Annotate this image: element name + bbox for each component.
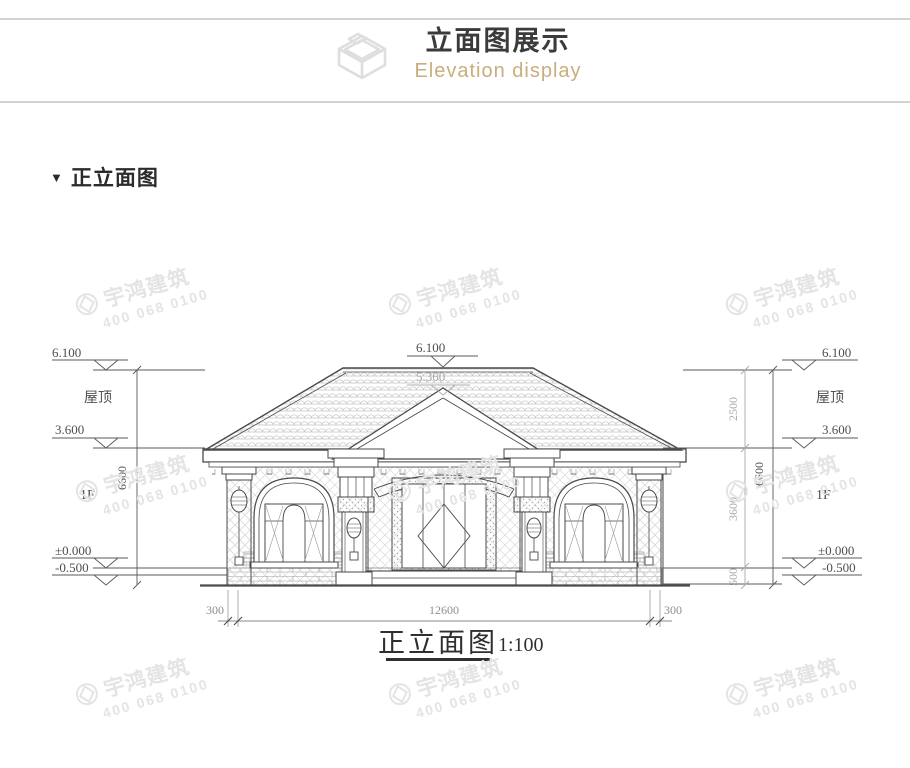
level-label-ridge-center: 6.100	[416, 340, 445, 355]
level-label-zero-left: ±0.000	[55, 543, 91, 558]
total-height-dim-right: 6600	[752, 462, 766, 486]
level-label-zero-right: ±0.000	[818, 543, 854, 558]
roof-label-left: 屋顶	[84, 391, 112, 406]
main-width-dim: 12600	[429, 603, 459, 617]
level-label-ground-right: -0.500	[822, 560, 856, 575]
side-width-dim-left: 300	[206, 603, 224, 617]
drawing-caption: 正立面图	[378, 628, 498, 658]
level-label-eave-left: 3.600	[55, 422, 84, 437]
floor-label-right: 1F	[816, 488, 831, 503]
page: { "header": { "title": "立面图展示", "subtitl…	[0, 0, 910, 768]
level-label-ridge-left: 6.100	[52, 345, 81, 360]
floor-label-left: 1F	[80, 488, 95, 503]
level-label-ground-left: -0.500	[55, 560, 89, 575]
base-height-dim: 500	[726, 568, 740, 586]
drawing-scale: 1:100	[498, 634, 544, 656]
floor-height-dim: 3600	[726, 497, 740, 521]
caption-underline	[386, 658, 492, 661]
segment-dim-line-right	[741, 366, 749, 589]
side-width-dim-right: 300	[664, 603, 682, 617]
roof-label-right: 屋顶	[816, 391, 844, 406]
level-label-eave-right: 3.600	[822, 422, 851, 437]
dentil-frieze	[212, 469, 672, 475]
level-label-gable-center: 5.360	[416, 369, 445, 384]
level-label-ridge-right: 6.100	[822, 345, 851, 360]
total-height-dim-left: 6600	[115, 466, 129, 490]
corner-column-right	[632, 467, 666, 585]
roof-height-dim: 2500	[726, 397, 740, 421]
elevation-drawing: 6.100 屋顶 3.600 1F ±0.000 -0.500 6600 6.1…	[0, 0, 910, 768]
corner-column-left	[222, 467, 256, 585]
